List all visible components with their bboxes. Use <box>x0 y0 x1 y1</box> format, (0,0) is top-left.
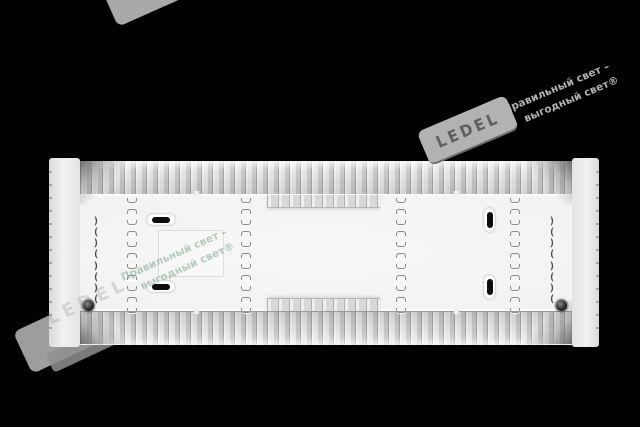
vent-slot <box>510 198 520 203</box>
vent-slot <box>396 275 406 280</box>
clip-slot-icon: )( <box>545 283 561 294</box>
vent-slot <box>396 264 406 269</box>
center-fins-bottom <box>267 298 380 311</box>
vent-slot <box>396 253 406 258</box>
vent-slot <box>241 231 251 236</box>
vent-slot <box>510 231 520 236</box>
vent-slot <box>510 275 520 280</box>
vent-slot <box>241 297 251 302</box>
vent-slot <box>241 220 251 225</box>
screw <box>556 300 567 311</box>
vent-slot <box>396 286 406 291</box>
segment-seam <box>454 309 459 314</box>
vent-slot <box>127 253 137 258</box>
vent-slot <box>241 275 251 280</box>
vent-slot-column <box>127 198 139 319</box>
ledel-logo-plate-top-left <box>97 0 195 27</box>
clip-slot-icon: )( <box>89 216 105 227</box>
heatsink-fin-band-top <box>80 161 572 195</box>
vent-slot <box>241 308 251 313</box>
vent-slot <box>241 253 251 258</box>
vent-slot <box>127 242 137 247</box>
vent-slot <box>241 209 251 214</box>
segment-seam <box>454 191 459 196</box>
vent-slot <box>396 242 406 247</box>
vent-slot <box>510 308 520 313</box>
clip-slot-icon: )( <box>545 238 561 249</box>
vent-slot <box>127 198 137 203</box>
corner-gusset-top-right <box>526 161 572 205</box>
product-photo-stage: LEDEL Правильный свет – выгодный свет® L… <box>0 0 640 427</box>
vent-slot <box>396 308 406 313</box>
mounting-slot-horizontal <box>147 214 175 225</box>
vent-slot <box>396 220 406 225</box>
vent-slot <box>241 286 251 291</box>
vent-slot-column <box>396 198 408 319</box>
vent-slot <box>396 198 406 203</box>
vent-slot <box>510 220 520 225</box>
end-cap-right <box>572 158 599 347</box>
clip-slot-icon: )( <box>89 261 105 272</box>
vent-slot <box>241 242 251 247</box>
vent-slot <box>241 264 251 269</box>
mounting-slot-vertical <box>484 275 495 299</box>
clip-slot-icon: )( <box>545 216 561 227</box>
vent-slot <box>127 220 137 225</box>
vent-slot <box>510 286 520 291</box>
segment-seam <box>194 191 199 196</box>
center-fins-top <box>267 195 380 208</box>
vent-slot <box>127 209 137 214</box>
heatsink-fin-band-bottom <box>80 311 572 345</box>
vent-slot <box>396 297 406 302</box>
vent-slot <box>510 297 520 302</box>
vent-slot <box>396 209 406 214</box>
segment-seam <box>194 309 199 314</box>
watermark-tagline: Правильный свет – выгодный свет® <box>501 37 640 133</box>
vent-slot <box>396 231 406 236</box>
ledel-brand-text: LEDEL <box>433 108 502 152</box>
corner-gusset-top-left <box>80 161 126 205</box>
vent-slot <box>510 209 520 214</box>
back-panel <box>80 194 572 311</box>
vent-slot <box>127 308 137 313</box>
vent-slot <box>510 264 520 269</box>
clip-slot-icon: )( <box>545 261 561 272</box>
luminaire-body: )( )( )( )( )( )( )( )( <box>80 161 572 344</box>
vent-slot <box>127 231 137 236</box>
vent-slot <box>241 198 251 203</box>
vent-slot-column <box>241 198 253 319</box>
vent-slot <box>510 242 520 247</box>
clip-slot-icon: )( <box>89 238 105 249</box>
vent-slot <box>510 253 520 258</box>
led-luminaire: )( )( )( )( )( )( )( )( <box>49 158 599 347</box>
vent-slot-column <box>510 198 522 319</box>
mounting-slot-vertical <box>484 208 495 232</box>
